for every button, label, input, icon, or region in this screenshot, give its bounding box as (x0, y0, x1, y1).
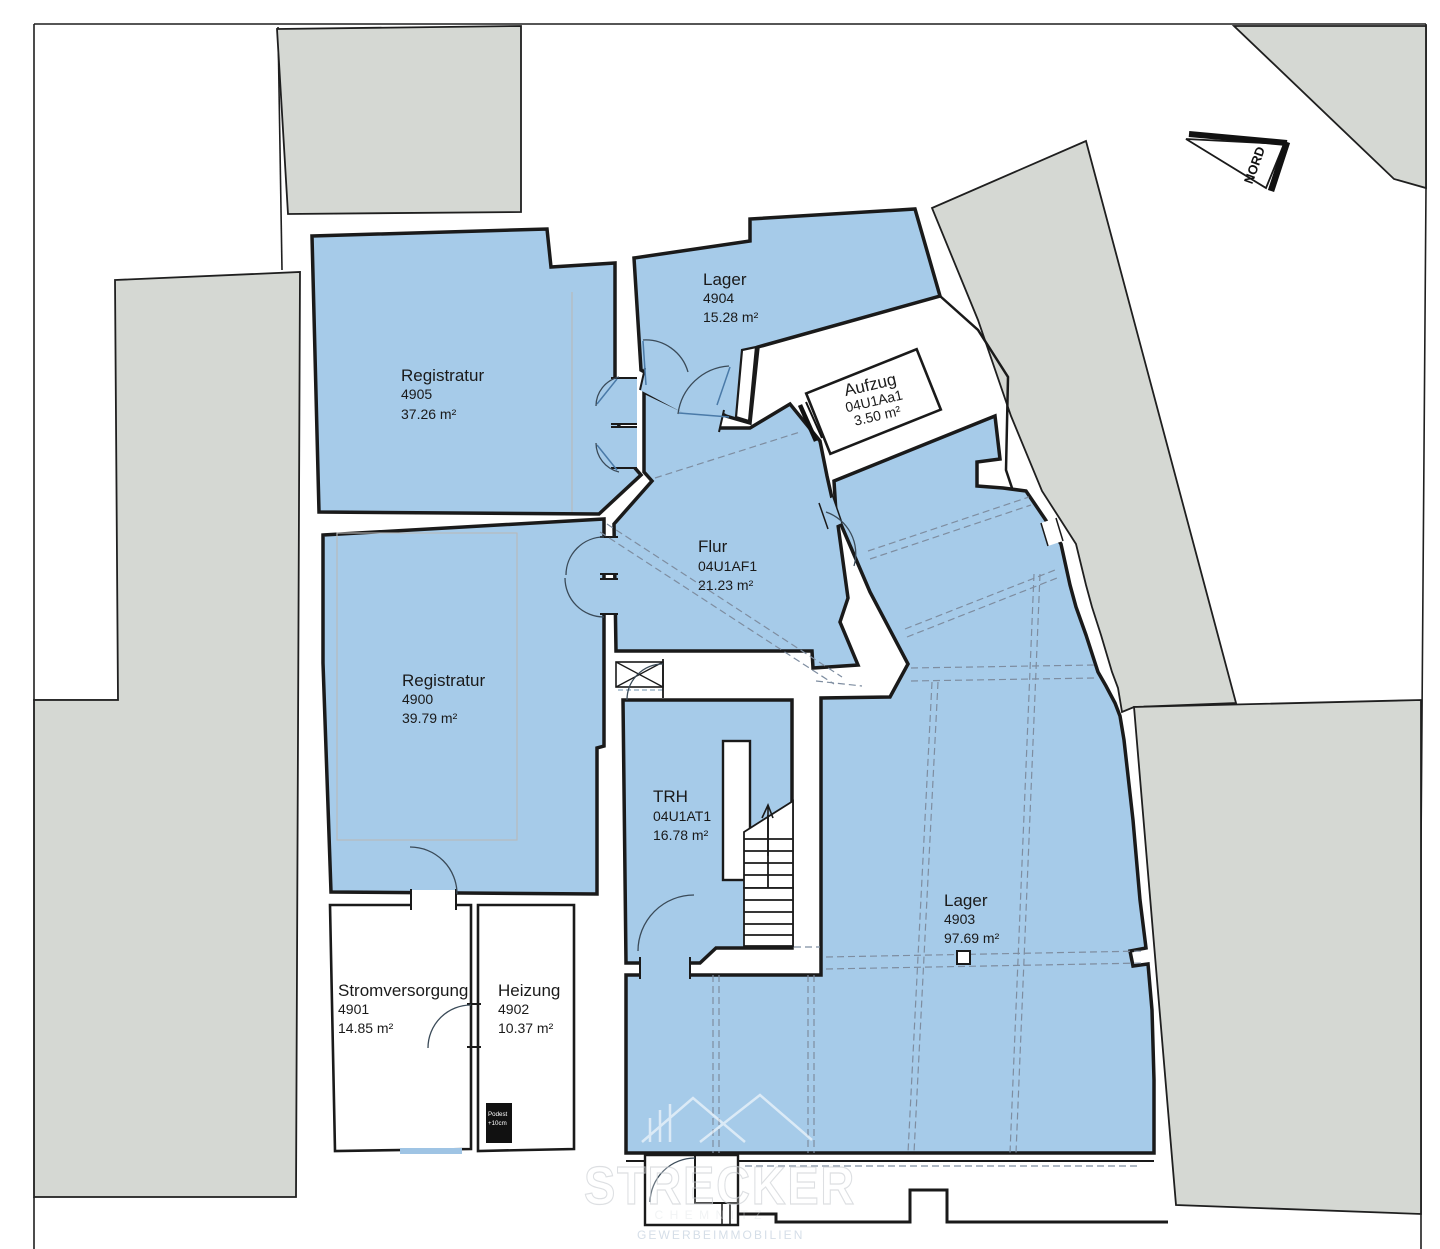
svg-text:4903: 4903 (944, 911, 975, 927)
svg-text:GEWERBEIMMOBILIEN: GEWERBEIMMOBILIEN (637, 1228, 805, 1242)
svg-text:10.37 m²: 10.37 m² (498, 1020, 554, 1036)
svg-text:TRH: TRH (653, 787, 688, 806)
svg-text:4900: 4900 (402, 691, 433, 707)
svg-text:Heizung: Heizung (498, 981, 560, 1000)
svg-text:Podest: Podest (488, 1111, 508, 1118)
svg-text:4904: 4904 (703, 290, 734, 306)
svg-text:+10cm: +10cm (488, 1120, 507, 1127)
svg-text:Stromversorgung: Stromversorgung (338, 981, 468, 1000)
svg-text:CHEMNITZ: CHEMNITZ (655, 1208, 770, 1222)
svg-text:4905: 4905 (401, 386, 432, 402)
svg-text:Registratur: Registratur (401, 366, 484, 385)
svg-text:04U1AT1: 04U1AT1 (653, 808, 711, 824)
svg-text:4902: 4902 (498, 1001, 529, 1017)
svg-text:21.23 m²: 21.23 m² (698, 577, 754, 593)
svg-text:16.78 m²: 16.78 m² (653, 827, 709, 843)
svg-text:Lager: Lager (944, 891, 988, 910)
svg-text:14.85 m²: 14.85 m² (338, 1020, 394, 1036)
svg-text:4901: 4901 (338, 1001, 369, 1017)
svg-text:Flur: Flur (698, 537, 728, 556)
svg-text:37.26 m²: 37.26 m² (401, 406, 457, 422)
svg-text:15.28 m²: 15.28 m² (703, 309, 759, 325)
svg-text:39.79 m²: 39.79 m² (402, 710, 458, 726)
svg-text:97.69 m²: 97.69 m² (944, 930, 1000, 946)
svg-text:Registratur: Registratur (402, 671, 485, 690)
svg-text:STRECKER: STRECKER (584, 1156, 856, 1216)
svg-text:04U1AF1: 04U1AF1 (698, 558, 757, 574)
svg-text:Lager: Lager (703, 270, 747, 289)
